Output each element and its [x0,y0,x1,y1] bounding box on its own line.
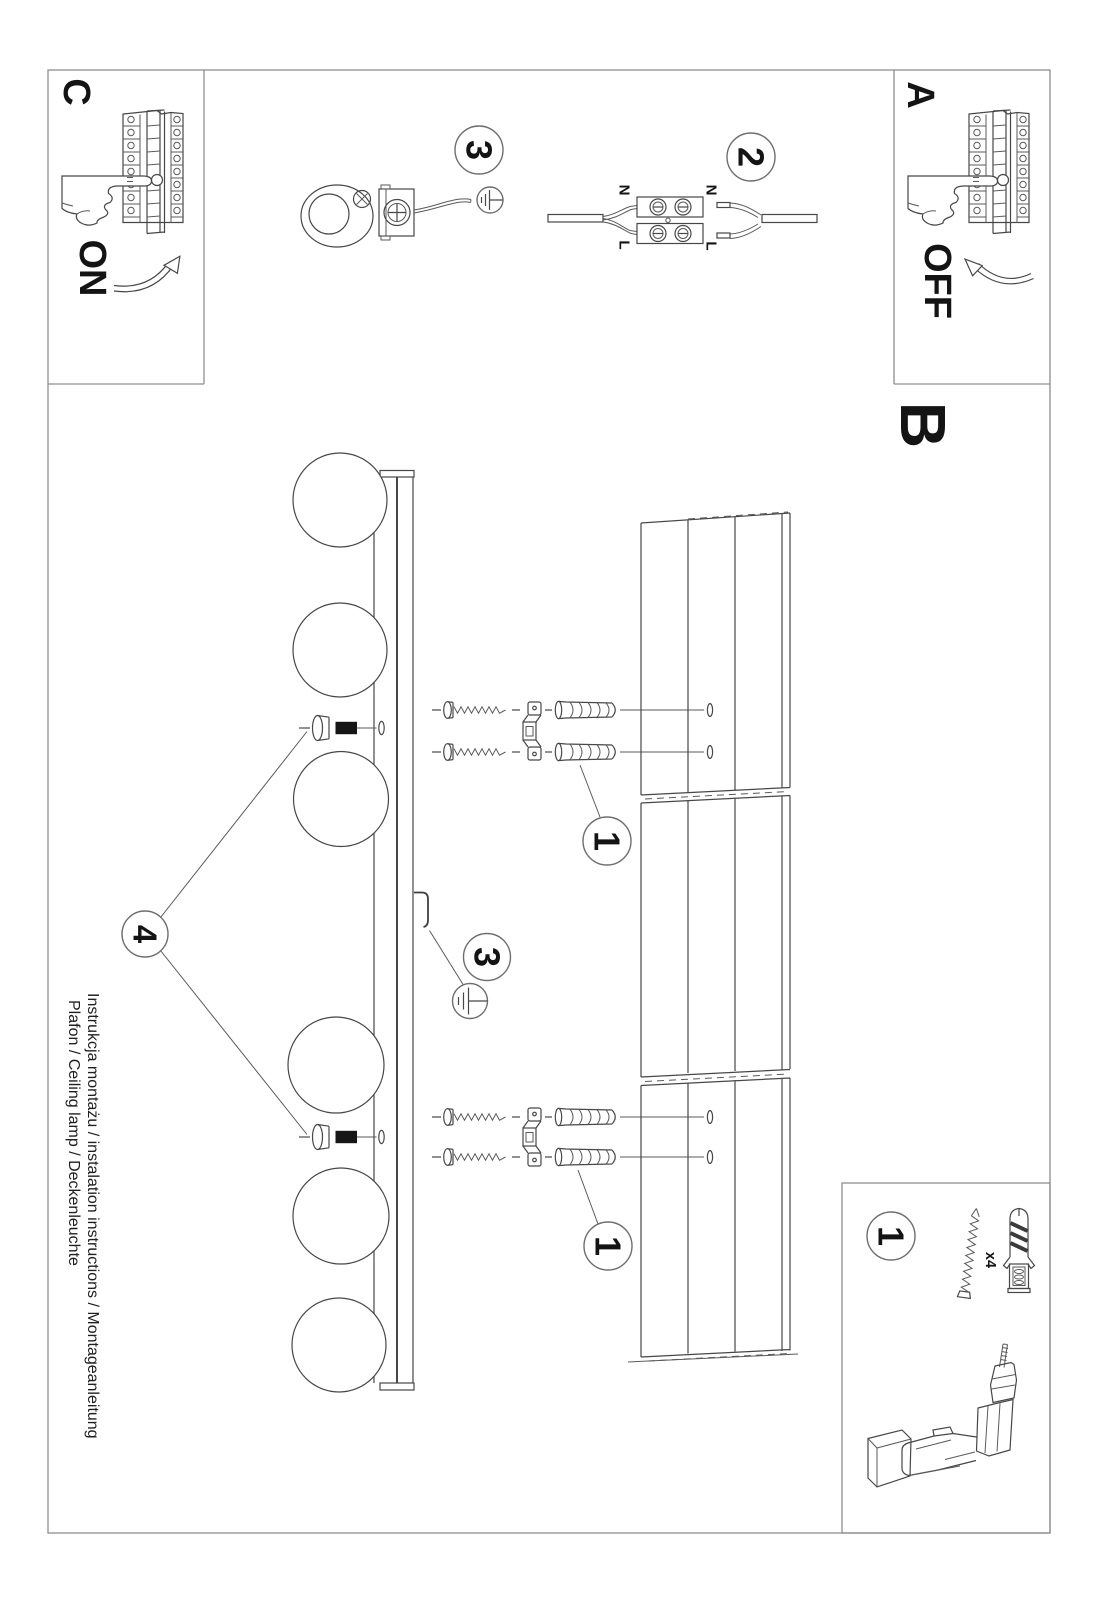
step1-callout-lower: 1 [578,1170,632,1270]
panel-c-label: C [55,78,97,105]
panel-a-label: A [899,81,941,108]
panel-b-label: B [887,402,959,448]
sheet-frame [48,70,1050,1533]
quantity-label: x4 [982,1252,998,1268]
wire-label-n: N [616,185,633,196]
mounting-screw-row [432,701,713,718]
wire-ferrule [717,233,730,238]
glass-sphere [292,1298,386,1392]
wire-right-split [730,203,761,239]
step3-ground-mid: 3 [430,931,511,1019]
step2-wiring: 2 N L N L [548,133,817,251]
wire-left-split [603,206,637,235]
mounting-screw-row [432,1108,713,1125]
step2-number: 2 [731,147,772,167]
step3-number: 3 [459,140,500,160]
off-arrow-icon [965,259,1034,284]
sphere-bolt-icon [299,1125,384,1150]
step4-callout: 4 [122,732,307,1135]
title-block: Instrukcja montażu / instalation instruc… [65,993,101,1439]
cable-right [762,215,817,223]
ground-symbol-icon [477,187,503,213]
step3-number: 3 [467,947,508,967]
mounting-screw-row [432,743,713,760]
wire-label-n: N [703,185,720,196]
caption-line-2: Plafon / Ceiling lamp / Deckenleuchte [65,1000,82,1266]
step4-number: 4 [127,925,164,944]
circuit-breaker-icon [908,110,1029,234]
screw-icon [957,1208,982,1299]
glass-sphere [293,1168,389,1264]
earth-wire [414,199,471,213]
cable-left [548,215,603,223]
instruction-sheet: C ON A OFF B 2 [0,0,1098,1600]
wire-ferrule [717,203,730,208]
mounting-screw-row [432,1148,713,1165]
step1-callout-upper: 1 [580,765,631,865]
wall-plug-icon [1004,1209,1035,1293]
step1-number: 1 [871,1226,912,1246]
terminal-block-l [637,224,703,244]
step3-ground-top: 3 [301,126,503,247]
mounting-bracket-icon [523,702,541,760]
off-label: OFF [916,243,958,319]
step1-number: 1 [588,1236,629,1256]
on-label: ON [71,240,113,297]
circuit-breaker-icon [62,110,183,234]
drill-icon [868,1344,1017,1487]
sphere-bolt-icon [299,716,384,741]
mounting-bracket-icon [523,1108,541,1166]
earth-hook-icon [414,893,428,928]
panel-a: A OFF [899,81,1034,319]
on-arrow-icon [114,256,180,292]
ceiling-lamp-drawing [288,453,428,1392]
glass-sphere [288,1017,384,1113]
caption-line-1: Instrukcja montażu / instalation instruc… [84,993,101,1439]
ceiling-panel-drawing [628,512,798,1362]
panel-c: C ON [55,78,183,296]
step1-number: 1 [587,831,628,851]
wire-label-l: L [703,241,720,250]
glass-sphere [293,603,387,697]
parts-legend: 1 x4 [867,1208,1035,1487]
wire-label-l: L [616,240,633,249]
glass-sphere [294,752,389,847]
ground-symbol-icon [453,984,488,1019]
lamp-holder-icon [301,185,471,247]
glass-sphere [293,453,387,547]
terminal-block-n [637,197,703,217]
